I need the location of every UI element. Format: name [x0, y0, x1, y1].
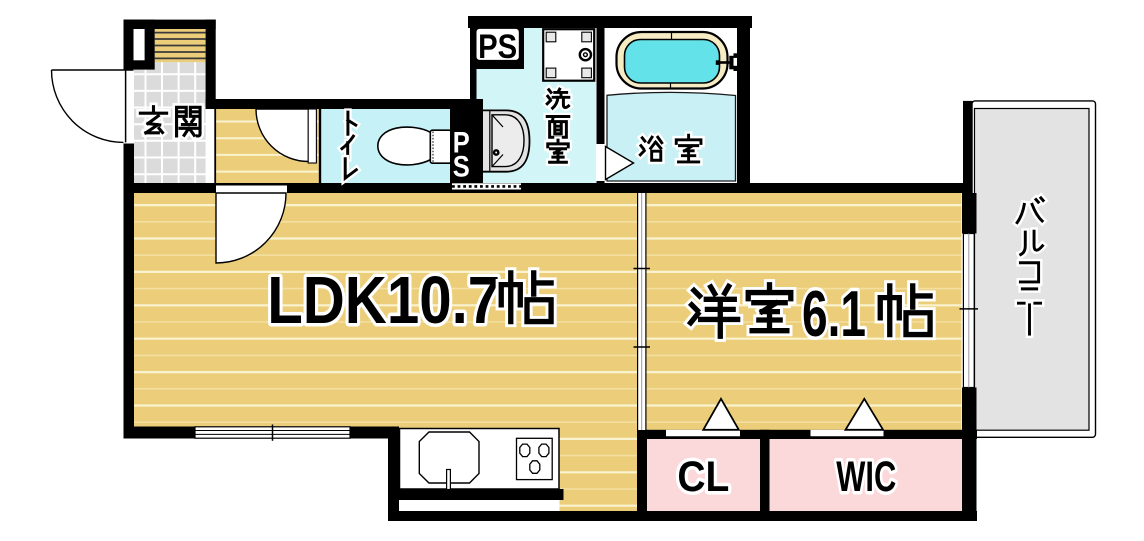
svg-text:WIC: WIC [836, 453, 896, 501]
svg-text:S: S [453, 151, 470, 184]
svg-text:PS: PS [478, 28, 517, 66]
svg-text:LDK10.7: LDK10.7 [267, 263, 500, 338]
svg-text:CL: CL [677, 453, 729, 501]
svg-text:6.1: 6.1 [802, 277, 866, 350]
